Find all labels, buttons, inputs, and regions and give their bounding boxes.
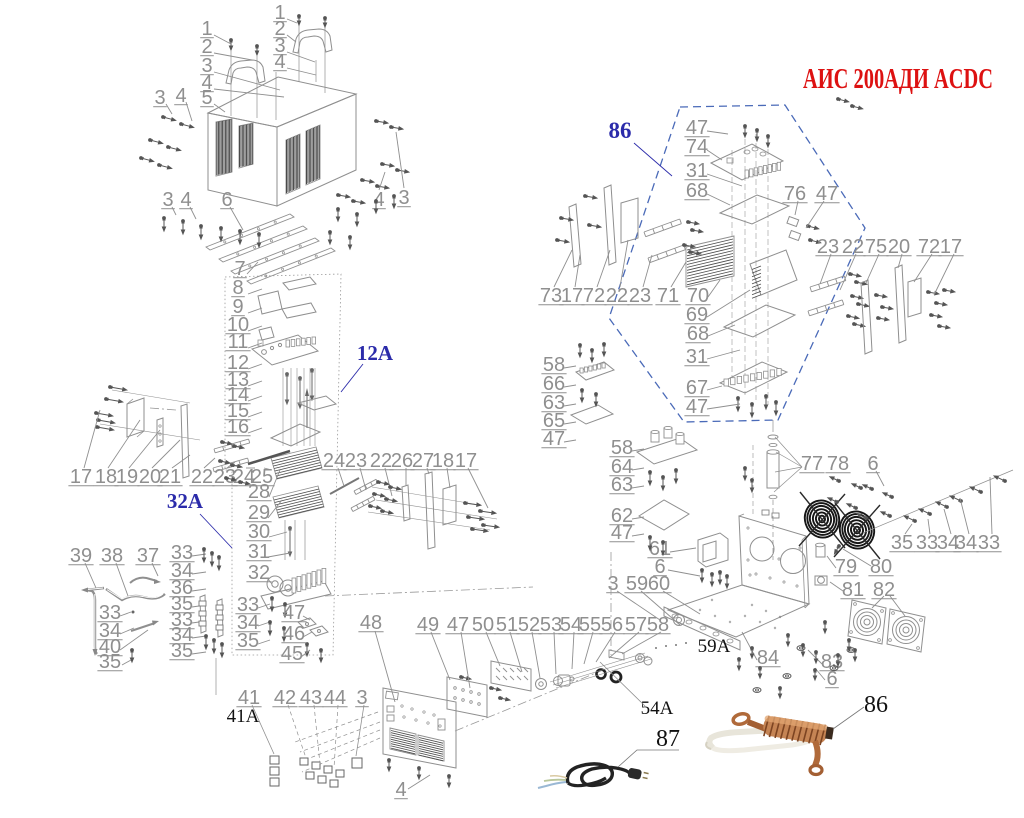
svg-text:49: 49 — [417, 614, 439, 636]
svg-text:80: 80 — [870, 556, 892, 578]
svg-text:38: 38 — [101, 545, 123, 567]
svg-text:47: 47 — [283, 602, 305, 624]
svg-text:47: 47 — [816, 183, 838, 205]
svg-text:77: 77 — [801, 453, 823, 475]
svg-text:22: 22 — [191, 466, 213, 488]
svg-text:37: 37 — [137, 545, 159, 567]
svg-text:27: 27 — [412, 450, 434, 472]
svg-text:48: 48 — [360, 612, 382, 634]
svg-text:4: 4 — [395, 779, 406, 801]
svg-text:58: 58 — [647, 614, 669, 636]
svg-text:34: 34 — [955, 532, 977, 554]
svg-text:31: 31 — [248, 541, 270, 563]
svg-text:11: 11 — [228, 331, 249, 353]
svg-text:81: 81 — [842, 579, 864, 601]
svg-text:56: 56 — [601, 614, 623, 636]
svg-text:79: 79 — [835, 556, 857, 578]
svg-text:35: 35 — [891, 532, 913, 554]
svg-text:52: 52 — [518, 614, 540, 636]
svg-text:45: 45 — [281, 643, 303, 665]
svg-text:54A: 54A — [641, 698, 674, 719]
svg-text:АИС 200АДИ ACDC: АИС 200АДИ ACDC — [803, 64, 993, 95]
svg-text:23: 23 — [817, 236, 839, 258]
svg-text:84: 84 — [757, 647, 779, 669]
svg-text:20: 20 — [888, 236, 910, 258]
svg-text:4: 4 — [274, 51, 285, 73]
svg-text:35: 35 — [237, 630, 259, 652]
svg-text:50: 50 — [472, 614, 494, 636]
svg-text:44: 44 — [324, 687, 346, 709]
svg-text:43: 43 — [300, 687, 322, 709]
svg-text:3: 3 — [398, 187, 409, 209]
svg-text:5: 5 — [201, 87, 212, 109]
svg-text:46: 46 — [283, 623, 305, 645]
svg-text:42: 42 — [274, 687, 296, 709]
svg-text:63: 63 — [611, 474, 633, 496]
svg-text:4: 4 — [175, 85, 186, 107]
svg-text:86: 86 — [864, 692, 888, 718]
svg-text:72: 72 — [918, 236, 940, 258]
svg-text:3: 3 — [154, 87, 165, 109]
svg-text:24: 24 — [323, 450, 345, 472]
svg-text:47: 47 — [543, 428, 565, 450]
svg-text:3: 3 — [356, 687, 367, 709]
svg-text:6: 6 — [654, 556, 665, 578]
svg-text:33: 33 — [916, 532, 938, 554]
svg-text:3: 3 — [607, 573, 618, 595]
svg-text:17: 17 — [70, 466, 92, 488]
svg-text:18: 18 — [95, 466, 117, 488]
svg-text:68: 68 — [686, 180, 708, 202]
svg-text:23: 23 — [629, 285, 651, 307]
svg-text:32: 32 — [248, 562, 270, 584]
svg-text:22: 22 — [370, 450, 392, 472]
svg-text:47: 47 — [686, 396, 708, 418]
svg-text:31: 31 — [686, 160, 708, 182]
svg-text:35: 35 — [99, 651, 121, 673]
svg-text:16: 16 — [227, 416, 249, 438]
svg-text:41A: 41A — [227, 706, 260, 727]
svg-text:35: 35 — [171, 640, 193, 662]
svg-text:20: 20 — [139, 466, 161, 488]
svg-text:22: 22 — [606, 285, 628, 307]
svg-text:75: 75 — [865, 236, 887, 258]
svg-text:6: 6 — [826, 668, 837, 690]
svg-text:17: 17 — [940, 236, 962, 258]
svg-text:22: 22 — [842, 236, 864, 258]
svg-text:71: 71 — [657, 285, 679, 307]
svg-text:4: 4 — [180, 189, 191, 211]
svg-text:47: 47 — [447, 614, 469, 636]
svg-text:12A: 12A — [357, 341, 394, 365]
svg-text:26: 26 — [391, 450, 413, 472]
svg-text:73: 73 — [540, 285, 562, 307]
svg-text:32A: 32A — [167, 489, 204, 513]
svg-text:72: 72 — [583, 285, 605, 307]
svg-text:57: 57 — [625, 614, 647, 636]
svg-text:87: 87 — [656, 726, 680, 752]
svg-text:47: 47 — [611, 522, 633, 544]
svg-text:23: 23 — [345, 450, 367, 472]
svg-text:39: 39 — [70, 545, 92, 567]
svg-text:3: 3 — [162, 189, 173, 211]
svg-text:18: 18 — [432, 450, 454, 472]
svg-text:86: 86 — [609, 118, 632, 143]
svg-text:68: 68 — [687, 323, 709, 345]
svg-text:59A: 59A — [698, 636, 731, 657]
svg-text:59: 59 — [626, 573, 648, 595]
svg-text:78: 78 — [827, 453, 849, 475]
svg-text:74: 74 — [686, 136, 708, 158]
svg-text:55: 55 — [579, 614, 601, 636]
svg-text:51: 51 — [496, 614, 518, 636]
svg-text:17: 17 — [455, 450, 477, 472]
svg-text:19: 19 — [116, 466, 138, 488]
svg-text:33: 33 — [978, 532, 1000, 554]
svg-text:17: 17 — [561, 285, 583, 307]
svg-text:30: 30 — [248, 521, 270, 543]
svg-text:53: 53 — [540, 614, 562, 636]
svg-text:21: 21 — [159, 466, 181, 488]
svg-text:76: 76 — [784, 183, 806, 205]
svg-text:31: 31 — [686, 346, 708, 368]
